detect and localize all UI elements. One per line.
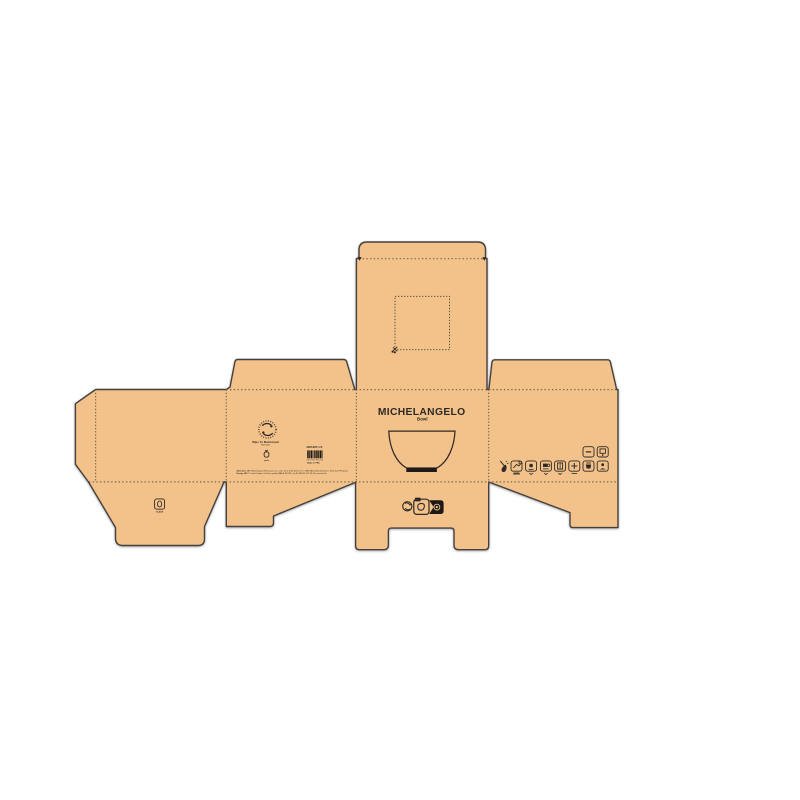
- svg-text:Wipe To Maintained: Wipe To Maintained: [252, 440, 279, 444]
- svg-text:pech: pech: [264, 460, 269, 462]
- svg-text:Made in PRC: Made in PRC: [307, 462, 320, 464]
- svg-text:MB5985 US: MB5985 US: [307, 445, 323, 449]
- svg-text:4 897093 851234: 4 897093 851234: [306, 459, 323, 461]
- svg-text:GLASS: GLASS: [156, 511, 164, 514]
- svg-text:With Style: With Style: [261, 443, 271, 446]
- svg-text:Bowl: Bowl: [417, 417, 428, 422]
- svg-text:Design HK PO also Product of G: Design HK PO also Product of Glass quali…: [237, 472, 328, 475]
- svg-text:Attention: MB, Michelangelo Ho: Attention: MB, Michelangelo Houseware Co…: [237, 469, 349, 472]
